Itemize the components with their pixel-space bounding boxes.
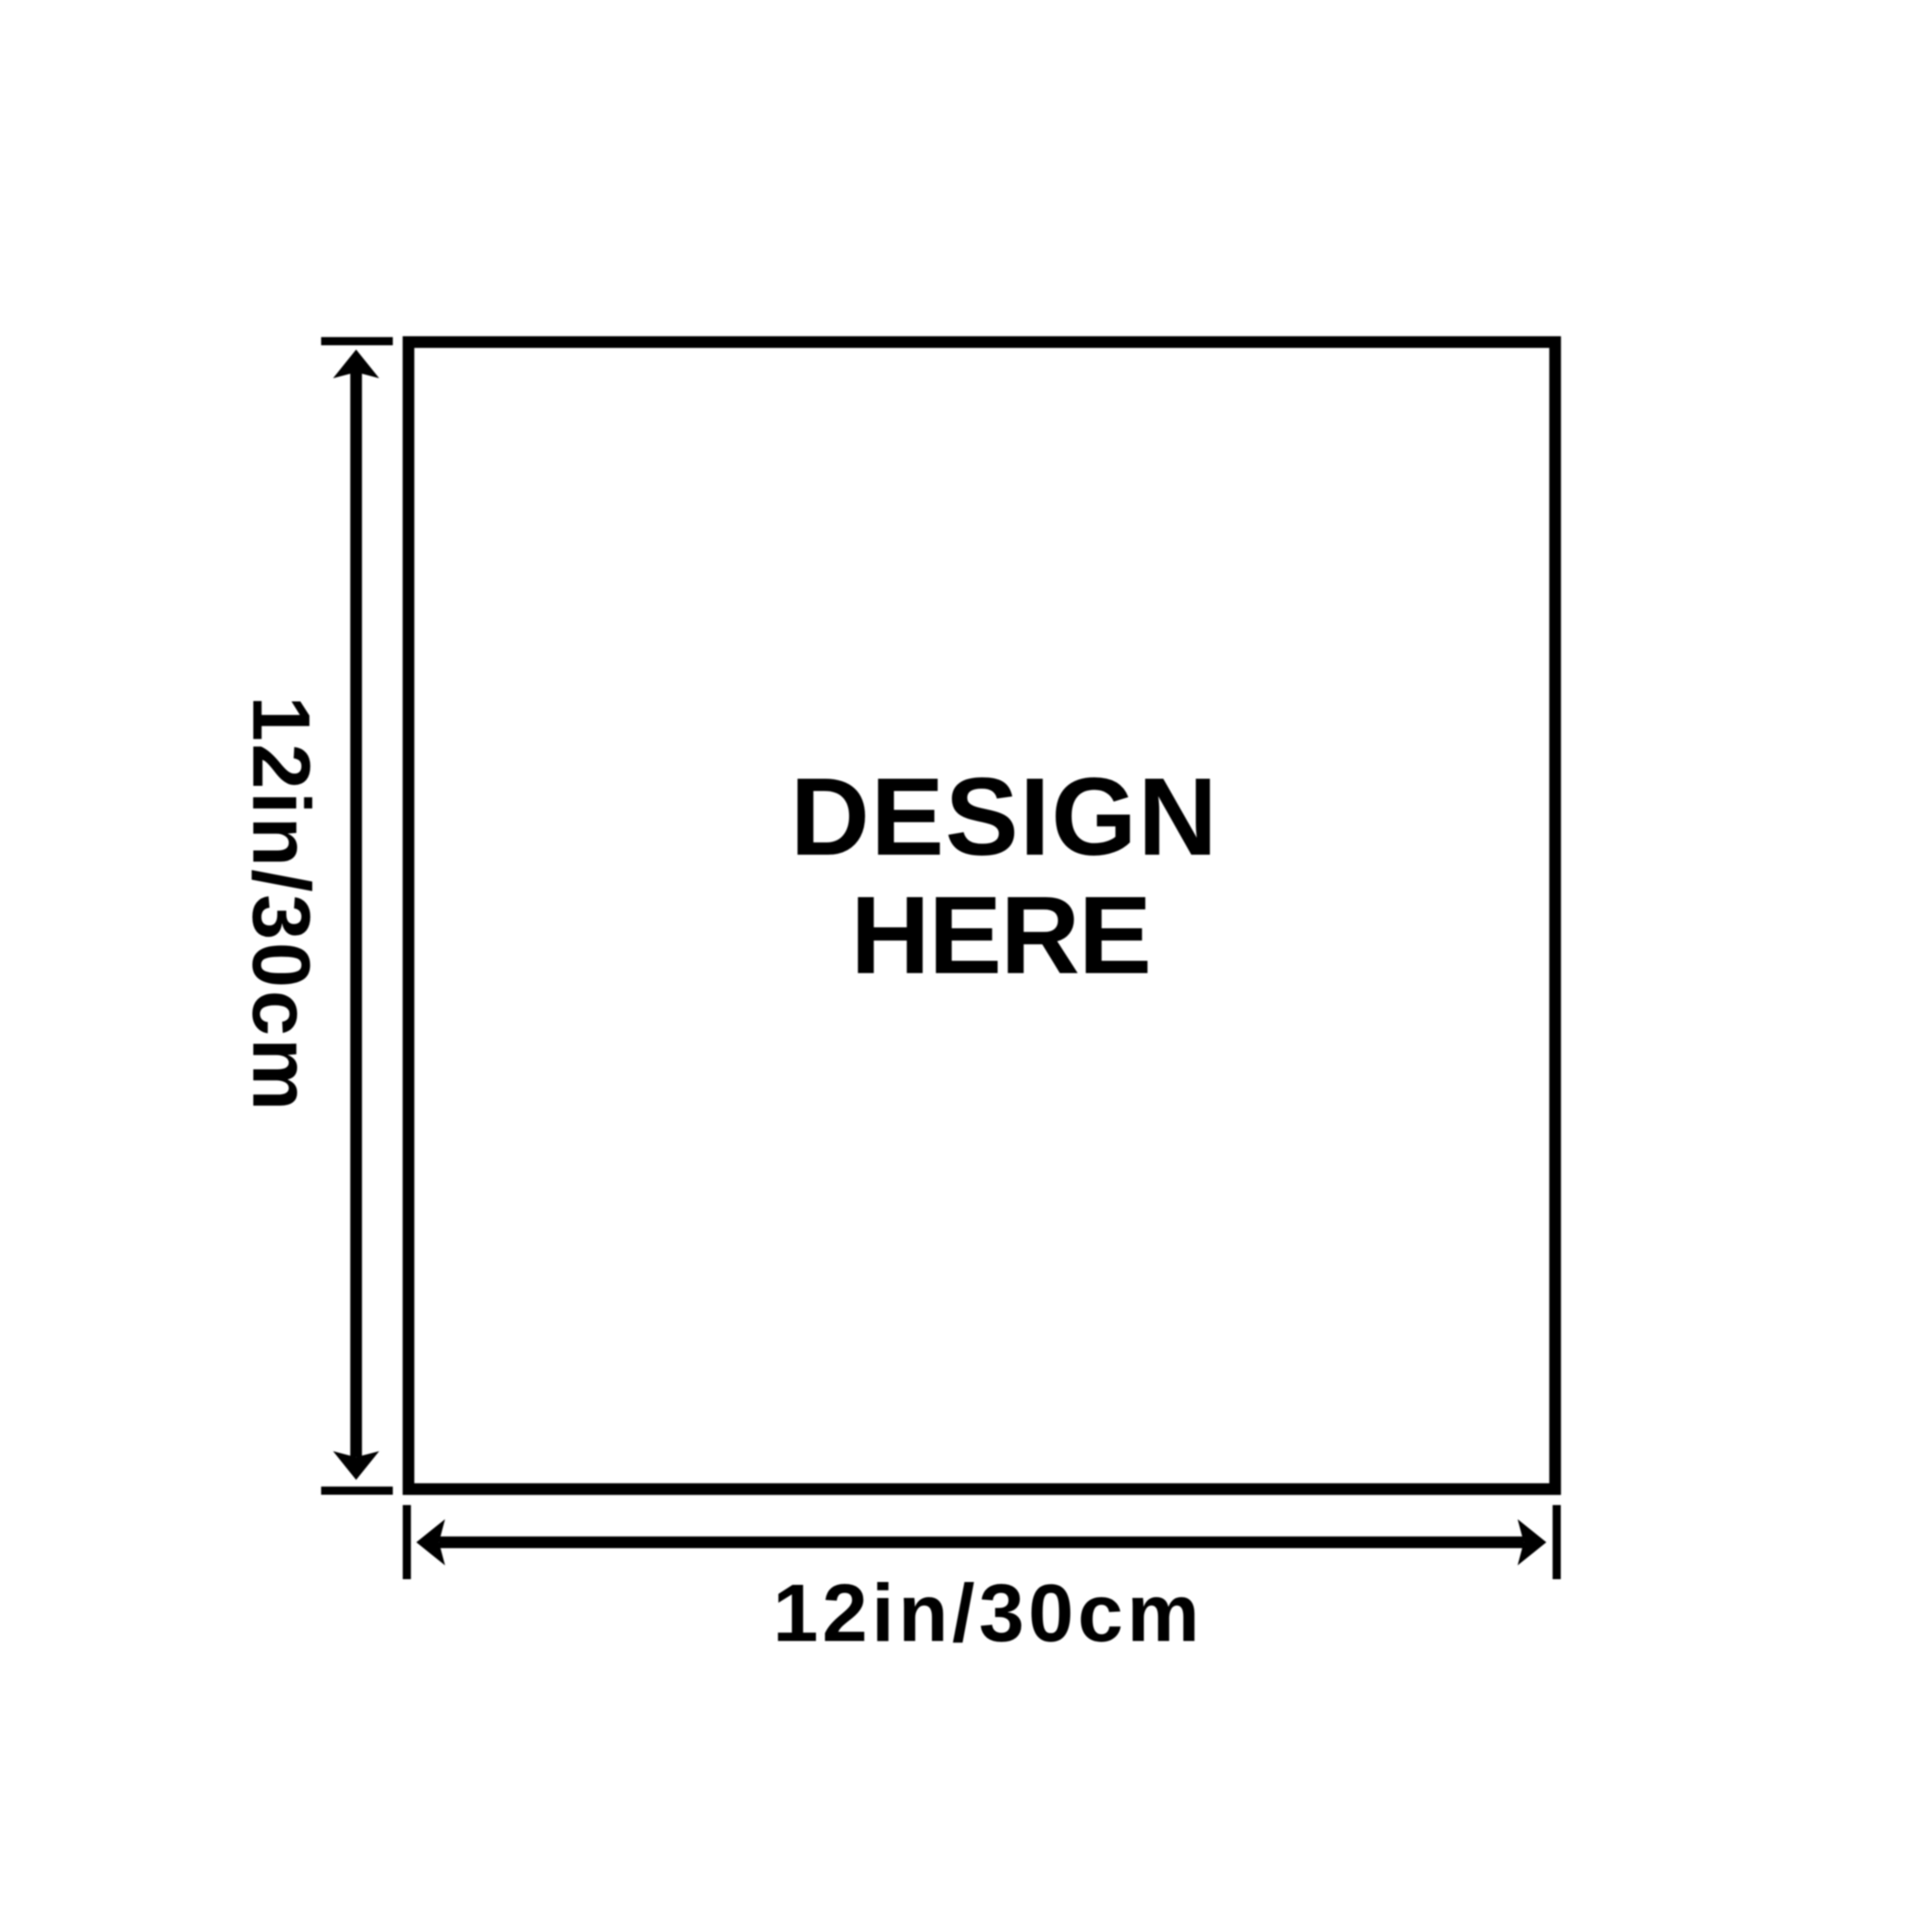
svg-text:HERE: HERE — [851, 874, 1152, 997]
svg-text:DESIGN: DESIGN — [791, 755, 1218, 878]
svg-text:12in/30cm: 12in/30cm — [773, 1568, 1199, 1658]
svg-text:12in/30cm: 12in/30cm — [236, 696, 326, 1111]
